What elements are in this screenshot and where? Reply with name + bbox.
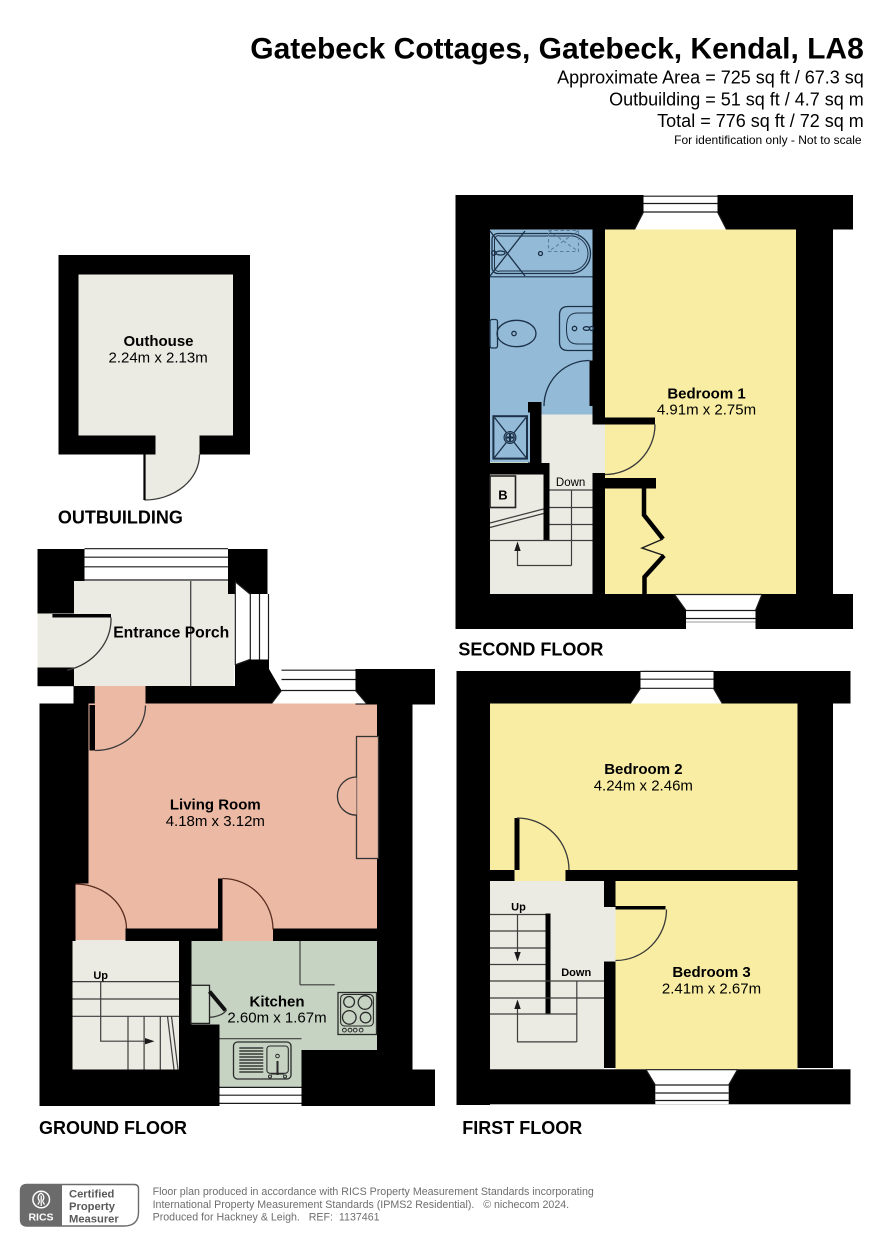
svg-text:Kitchen: Kitchen [249,993,304,1010]
svg-text:SECOND FLOOR: SECOND FLOOR [458,640,603,660]
svg-text:Certified: Certified [69,1189,115,1201]
svg-text:OUTBUILDING: OUTBUILDING [58,507,183,527]
svg-text:For identification only - Not: For identification only - Not to scale [674,133,862,147]
svg-text:Property: Property [69,1201,116,1213]
svg-text:Bedroom 2: Bedroom 2 [604,761,682,778]
svg-text:RICS: RICS [28,1212,53,1224]
svg-text:4.18m x 3.12m: 4.18m x 3.12m [166,813,265,830]
svg-text:Bedroom 3: Bedroom 3 [672,964,750,981]
svg-text:Outbuilding = 51 sq ft / 4.7 s: Outbuilding = 51 sq ft / 4.7 sq m [609,89,864,109]
svg-text:Outhouse: Outhouse [124,333,194,350]
svg-text:Approximate Area = 725 sq ft /: Approximate Area = 725 sq ft / 67.3 sq [557,67,864,87]
svg-text:4.24m x 2.46m: 4.24m x 2.46m [594,777,693,794]
svg-text:2.60m x 1.67m: 2.60m x 1.67m [227,1010,326,1027]
svg-text:International Property Measure: International Property Measurement Stand… [153,1199,570,1211]
svg-text:Up: Up [511,902,526,914]
svg-text:2.41m x 2.67m: 2.41m x 2.67m [662,980,761,997]
svg-text:2.24m x 2.13m: 2.24m x 2.13m [108,350,207,367]
svg-text:Down: Down [556,477,585,489]
svg-text:Up: Up [93,970,108,982]
svg-text:4.91m x 2.75m: 4.91m x 2.75m [657,402,756,419]
svg-text:Living Room: Living Room [170,796,261,813]
svg-text:Down: Down [561,967,591,979]
svg-text:Floor plan produced in accorda: Floor plan produced in accordance with R… [153,1186,594,1198]
svg-text:B: B [498,488,507,503]
svg-text:Entrance Porch: Entrance Porch [113,624,229,641]
svg-text:Measurer: Measurer [69,1214,119,1226]
svg-text:GROUND FLOOR: GROUND FLOOR [39,1118,187,1138]
svg-text:Total = 776 sq ft / 72 sq m: Total = 776 sq ft / 72 sq m [657,111,864,131]
svg-text:FIRST FLOOR: FIRST FLOOR [462,1118,582,1138]
svg-text:Produced for Hackney & Leigh.: Produced for Hackney & Leigh. REF: 11374… [153,1212,380,1224]
svg-text:Gatebeck Cottages, Gatebeck, K: Gatebeck Cottages, Gatebeck, Kendal, LA8 [250,33,864,66]
svg-text:Bedroom 1: Bedroom 1 [667,385,745,402]
